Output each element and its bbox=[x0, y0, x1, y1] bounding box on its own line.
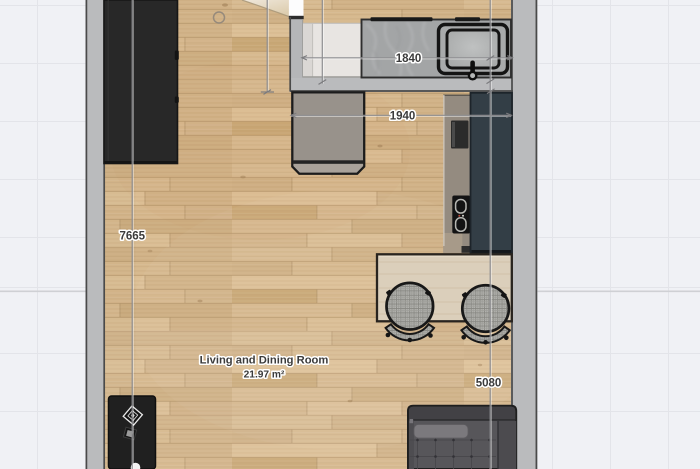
svg-text:7665: 7665 bbox=[120, 231, 146, 243]
svg-text:1940: 1940 bbox=[390, 111, 416, 123]
svg-text:5080: 5080 bbox=[476, 378, 502, 390]
svg-text:21.97 m²: 21.97 m² bbox=[244, 369, 285, 380]
svg-text:Living and Dining Room: Living and Dining Room bbox=[200, 355, 329, 367]
svg-text:1840: 1840 bbox=[396, 53, 422, 65]
